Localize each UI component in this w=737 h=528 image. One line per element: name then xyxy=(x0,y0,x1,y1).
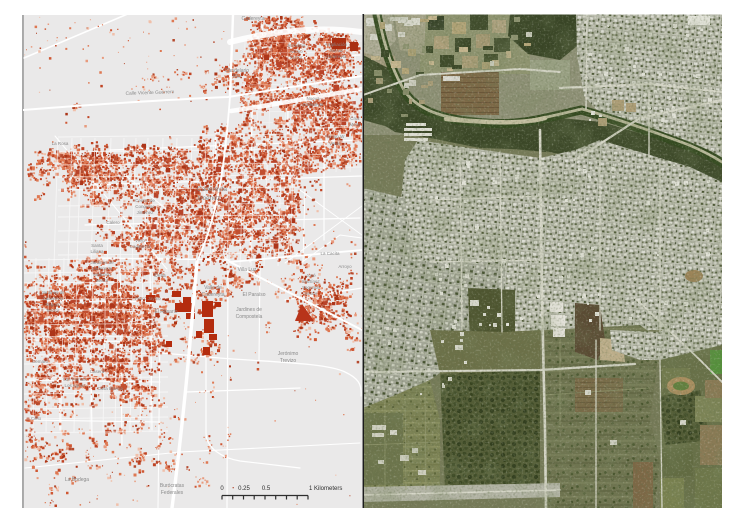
svg-text:Jardines de: Jardines de xyxy=(41,290,65,295)
svg-text:Cielo: Cielo xyxy=(31,416,42,421)
svg-text:El Rosario: El Rosario xyxy=(154,309,177,315)
svg-text:Casera: Casera xyxy=(90,369,105,374)
svg-text:Cadereyta: Cadereyta xyxy=(84,3,106,16)
svg-text:Cadereyta: Cadereyta xyxy=(130,244,151,249)
svg-text:Las Palmas: Las Palmas xyxy=(63,377,87,382)
svg-text:Liliana: Liliana xyxy=(90,249,104,254)
svg-text:Arroyo W: Arroyo W xyxy=(326,134,346,139)
svg-text:Santa: Santa xyxy=(91,243,103,248)
svg-text:La Bodega: La Bodega xyxy=(65,477,89,483)
svg-text:Arroyo: Arroyo xyxy=(338,264,352,269)
svg-text:Cadereyta: Cadereyta xyxy=(92,266,113,271)
svg-text:La Rosa: La Rosa xyxy=(52,141,69,146)
svg-text:Martínez: Martínez xyxy=(302,279,320,284)
svg-text:Villa Luz: Villa Luz xyxy=(238,267,257,273)
svg-text:0.25: 0.25 xyxy=(238,486,250,492)
svg-text:El Paraíso: El Paraíso xyxy=(242,292,265,298)
svg-text:Segund: Segund xyxy=(45,302,61,307)
svg-text:Delia: Delia xyxy=(154,273,166,279)
svg-text:Nueva: Nueva xyxy=(306,96,320,101)
svg-text:Cadereyta: Cadereyta xyxy=(241,16,264,22)
svg-text:Compostela: Compostela xyxy=(236,314,263,320)
svg-text:0.5: 0.5 xyxy=(262,486,271,492)
svg-text:Trevizo: Trevizo xyxy=(280,358,296,364)
svg-text:Jiménez: Jiménez xyxy=(196,195,220,202)
svg-text:Congreso: Congreso xyxy=(135,204,155,209)
svg-text:Cruz: Cruz xyxy=(350,116,360,121)
svg-text:Segundo: Segundo xyxy=(302,285,321,290)
svg-text:Viejo: Viejo xyxy=(135,238,145,243)
svg-text:Nueva: Nueva xyxy=(329,48,343,53)
svg-text:Verde: Verde xyxy=(329,141,341,146)
svg-text:Centro de: Centro de xyxy=(135,198,155,203)
svg-text:Cadereyta: Cadereyta xyxy=(201,292,224,298)
svg-text:Ampliación: Ampliación xyxy=(325,42,348,47)
svg-text:Sector: Sector xyxy=(304,291,318,296)
svg-text:Cadereyta: Cadereyta xyxy=(303,102,324,107)
svg-text:Sector: Sector xyxy=(46,308,60,313)
svg-text:Casa Blanca: Casa Blanca xyxy=(97,386,123,391)
svg-text:Calero: Calero xyxy=(106,220,120,225)
svg-text:Cadereyta: Cadereyta xyxy=(43,296,64,301)
svg-text:Fracc Jayme: Fracc Jayme xyxy=(135,296,161,301)
svg-text:Arroyo: Arroyo xyxy=(289,49,303,54)
svg-text:Cadereyta: Cadereyta xyxy=(326,54,347,59)
svg-text:Jerónimo: Jerónimo xyxy=(278,351,299,357)
svg-text:Jardines de: Jardines de xyxy=(236,307,262,313)
svg-text:Mend: Mend xyxy=(349,122,361,127)
svg-text:Jiménez: Jiménez xyxy=(137,210,155,215)
svg-text:La Cacita: La Cacita xyxy=(320,251,340,256)
svg-text:Los Aguas: Los Aguas xyxy=(64,383,86,388)
svg-text:Jardines de: Jardines de xyxy=(90,260,114,265)
svg-text:Sector: Sector xyxy=(95,278,109,283)
svg-text:Sector: Sector xyxy=(289,55,303,60)
svg-text:Burócratas: Burócratas xyxy=(160,483,185,489)
svg-text:Cadereyta: Cadereyta xyxy=(197,186,227,193)
svg-text:Federales: Federales xyxy=(161,490,184,496)
svg-text:1 Kilometers: 1 Kilometers xyxy=(309,486,342,492)
svg-text:Valle de: Valle de xyxy=(204,285,222,291)
svg-text:José: José xyxy=(306,273,316,278)
svg-text:Cemaro: Cemaro xyxy=(32,359,49,364)
svg-text:Río: Río xyxy=(233,74,241,80)
svg-text:Jerónimo: Jerónimo xyxy=(287,43,306,48)
svg-text:Segundo: Segundo xyxy=(93,272,112,277)
